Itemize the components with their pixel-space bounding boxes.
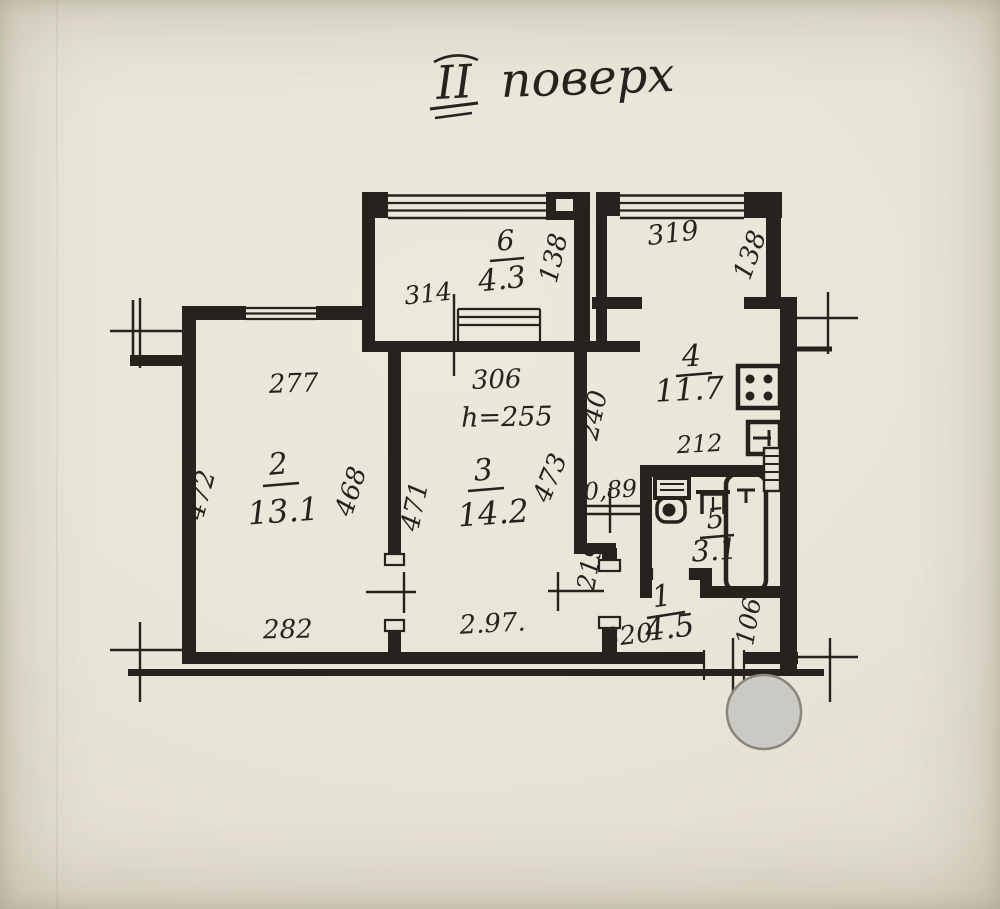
dimension-labels: 277 282 472 468 306 h=255 2.97. 471 473 …: [180, 215, 773, 654]
dim-hall-nook: 106: [730, 595, 767, 647]
door-jamb: [385, 620, 404, 631]
room-2-area: 13.1: [246, 490, 320, 533]
room-3-area: 14.2: [456, 492, 530, 535]
axis-marker-room23: [366, 572, 416, 613]
dim-room3-top: 306: [471, 364, 522, 396]
title-floor-word: поверх: [500, 47, 676, 109]
window-balcony6: [388, 196, 548, 219]
dim-balconyR-width: 319: [645, 215, 700, 252]
toilet-icon: [655, 478, 689, 522]
dim-room3-bottom: 2.97.: [458, 607, 527, 640]
room-label-2: 2 13.1: [246, 446, 320, 532]
room-4-area: 11.7: [654, 370, 725, 410]
room-5-number: 5: [705, 501, 726, 535]
dim-room2-top: 277: [267, 368, 319, 400]
wall-balconyR-cap-left: [596, 192, 620, 216]
wall-stub-left: [130, 355, 182, 366]
dim-balcony6-width: 314: [403, 277, 453, 311]
floor-plan: ІІ поверх: [0, 0, 1000, 909]
window-balconyR: [620, 196, 744, 219]
dim-hall-opening: 0,89: [583, 474, 638, 506]
room-6-area: 4.3: [475, 260, 527, 300]
stove-icon: [738, 366, 780, 408]
wall-bottom-inner-left: [182, 652, 704, 664]
room-6-number: 6: [496, 224, 516, 258]
room-5-area: 3.1: [690, 531, 738, 568]
room-labels: 2 13.1 3 14.2 4 11.7 5 3.1 1 4.5 6 4.3: [246, 224, 738, 649]
floor-title: ІІ поверх: [430, 47, 675, 118]
room-label-6: 6 4.3: [475, 224, 527, 300]
title-underline-2: [435, 113, 472, 118]
room-label-3: 3 14.2: [456, 452, 530, 534]
vent-duct: [764, 448, 780, 491]
wall-room2-top-left: [190, 306, 246, 320]
dim-room2-bottom: 282: [262, 615, 313, 646]
room-label-5: 5 3.1: [690, 501, 738, 568]
room-3-number: 3: [472, 452, 494, 489]
axis-marker-right-top: [797, 292, 858, 354]
wall-room2-top-right: [316, 306, 364, 320]
wall-balcony6-right: [574, 192, 590, 352]
title-floor-numeral: ІІ: [434, 54, 475, 110]
room-3-underline: [468, 488, 504, 491]
dim-room3-left: 471: [395, 479, 435, 535]
dim-kitchen-inner: 212: [675, 429, 723, 459]
wall-balcony6-cap-left: [362, 192, 388, 218]
wall-bath-bottom-a: [640, 568, 652, 580]
stamp-circle: [727, 675, 801, 749]
room-2-underline: [263, 483, 299, 486]
window-room3-balcony: [458, 309, 540, 341]
wall-kitchen-top-left: [592, 297, 642, 309]
axis-marker-left-bottom: [110, 622, 182, 702]
window-room2: [246, 308, 316, 319]
dim-hall-bottom: 320: [602, 618, 655, 654]
cap-notch: [556, 199, 573, 211]
dim-room3-right: 473: [527, 449, 574, 507]
room-4-number: 4: [680, 339, 702, 375]
door-jamb: [385, 554, 404, 565]
dim-room3-ceiling: h=255: [461, 401, 553, 434]
dim-room2-right: 468: [329, 463, 373, 520]
wall-exterior-right: [780, 302, 797, 674]
room-2-number: 2: [266, 446, 289, 483]
dim-balcony6-depth: 138: [534, 231, 574, 286]
wall-bottom-outer: [128, 669, 824, 676]
room-label-4: 4 11.7: [654, 339, 725, 410]
wall-bottom-inner-right: [744, 652, 798, 664]
